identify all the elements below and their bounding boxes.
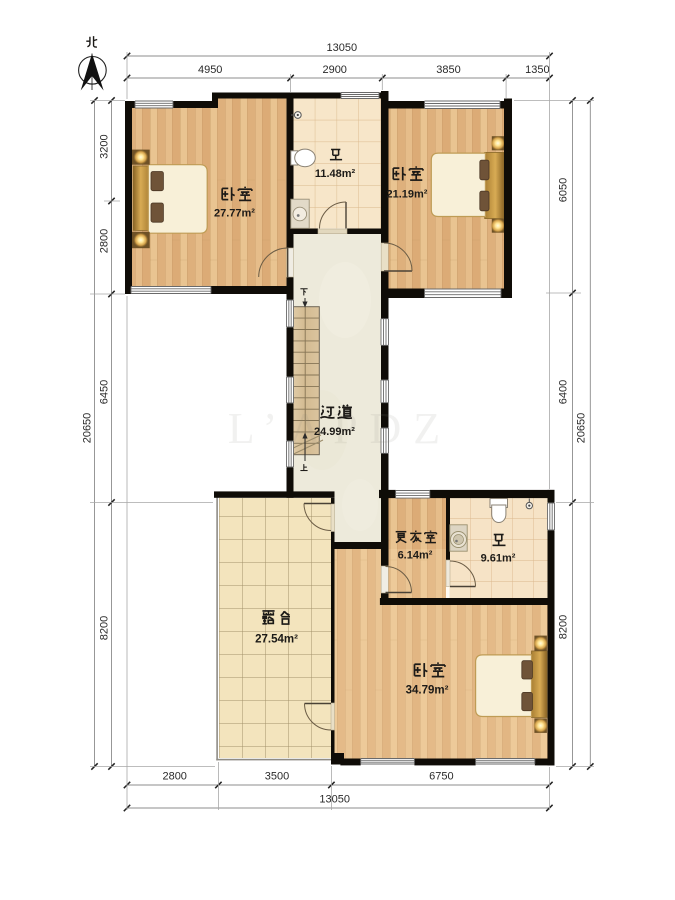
svg-text:1350: 1350 [525,64,549,76]
svg-text:6.14m²: 6.14m² [398,550,433,562]
svg-text:6450: 6450 [99,380,111,404]
svg-text:2900: 2900 [322,64,346,76]
svg-text:3500: 3500 [265,771,289,783]
svg-text:9.61m²: 9.61m² [481,553,516,565]
svg-text:24.99m²: 24.99m² [314,426,355,438]
svg-text:11.48m²: 11.48m² [315,168,356,180]
svg-text:21.19m²: 21.19m² [387,188,428,200]
svg-text:13050: 13050 [319,794,350,806]
svg-text:6400: 6400 [558,380,570,404]
svg-text:2800: 2800 [162,771,186,783]
svg-text:8200: 8200 [558,615,570,639]
svg-text:27.54m²: 27.54m² [255,634,298,646]
svg-text:34.79m²: 34.79m² [406,684,449,696]
svg-text:27.77m²: 27.77m² [214,208,255,220]
svg-text:6050: 6050 [558,178,570,202]
svg-text:8200: 8200 [99,616,111,640]
svg-text:20650: 20650 [82,413,94,444]
svg-text:20650: 20650 [575,413,587,444]
svg-text:4950: 4950 [198,64,222,76]
svg-text:13050: 13050 [327,42,358,54]
svg-text:3200: 3200 [99,134,111,158]
svg-text:3850: 3850 [436,64,460,76]
svg-text:6750: 6750 [429,771,453,783]
svg-text:2800: 2800 [99,229,111,253]
